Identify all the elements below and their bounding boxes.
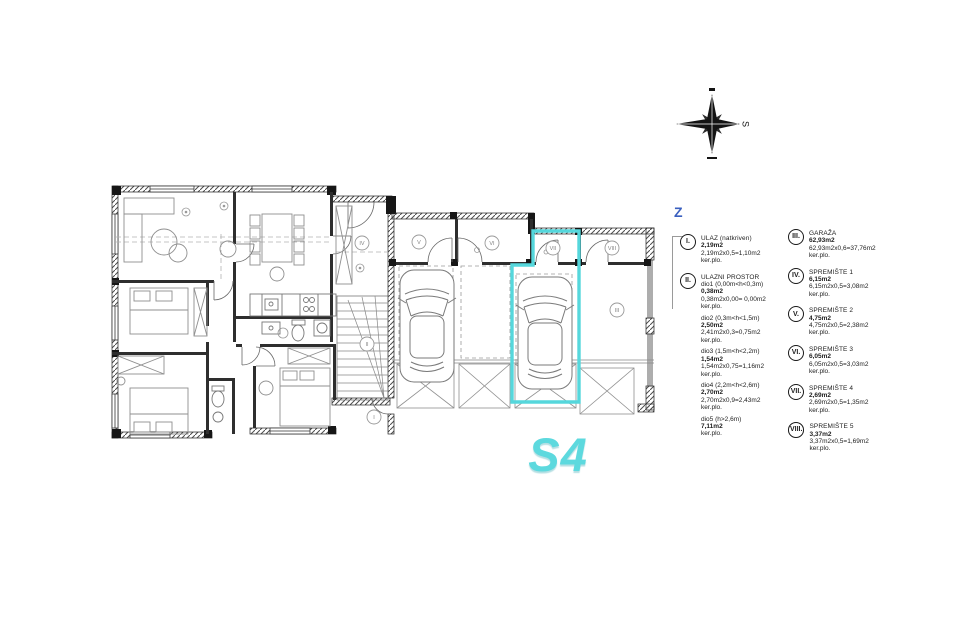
- room-label-viii: VIII: [605, 241, 619, 255]
- svg-text:VIII: VIII: [608, 246, 617, 252]
- bathroom-2: [212, 386, 224, 422]
- bedroom-b: [117, 356, 188, 434]
- legend-item-text: ULAZNI PROSTORdio1 (0,00m<h<0,3m)0,38m20…: [701, 273, 766, 438]
- compass-top-tick: [709, 88, 715, 91]
- room-label-vii: VII: [546, 241, 560, 255]
- garage-symbols: [475, 248, 549, 255]
- roman-numeral-badge: IV.: [788, 268, 804, 284]
- legend-item-text: SPREMIŠTE 16,15m26,15m2x0,5=3,08m2ker.pl…: [809, 268, 868, 299]
- svg-text:II: II: [365, 342, 369, 348]
- legend-item-iii: III.GARAŽA62,93m262,93m2x0,6=37,76m2ker.…: [788, 229, 893, 260]
- roman-numeral-badge: VII.: [788, 384, 804, 400]
- compass-bottom-tick: [707, 157, 717, 159]
- svg-text:VII: VII: [550, 246, 557, 252]
- legend-item-text: SPREMIŠTE 42,69m22,69m2x0,5=1,35m2ker.pl…: [809, 384, 868, 415]
- svg-text:V: V: [417, 240, 421, 246]
- section-marker-z: Z: [674, 204, 683, 220]
- legend-item-vii: VII.SPREMIŠTE 42,69m22,69m2x0,5=1,35m2ke…: [788, 384, 893, 415]
- svg-text:VI: VI: [489, 241, 495, 247]
- car-2: [516, 277, 574, 389]
- legend-item-iv: IV.SPREMIŠTE 16,15m26,15m2x0,5=3,08m2ker…: [788, 268, 893, 299]
- bedroom-c: [259, 348, 330, 426]
- bathroom-fixtures: [262, 320, 330, 341]
- legend-item-text: GARAŽA62,93m262,93m2x0,6=37,76m2ker.plo.: [809, 229, 876, 260]
- roman-numeral-badge: VI.: [788, 345, 804, 361]
- roman-numeral-badge: V.: [788, 306, 804, 322]
- bedroom-a: [130, 288, 207, 336]
- legend-column-2: III.GARAŽA62,93m262,93m2x0,6=37,76m2ker.…: [788, 229, 893, 461]
- room-label-v: V: [412, 235, 426, 249]
- legend-item-text: SPREMIŠTE 36,05m26,05m2x0,5=3,03m2ker.pl…: [809, 345, 868, 376]
- room-label-iii: III: [610, 303, 624, 317]
- legend-item-ii: II.ULAZNI PROSTORdio1 (0,00m<h<0,3m)0,38…: [680, 273, 785, 438]
- roman-numeral-badge: III.: [788, 229, 804, 245]
- compass-north-letter: S: [741, 121, 751, 127]
- roman-numeral-badge: I.: [680, 234, 696, 250]
- roman-numeral-badge: II.: [680, 273, 696, 289]
- room-label-iv: IV: [355, 236, 369, 250]
- svg-text:III: III: [615, 308, 620, 314]
- legend-column-1: I.ULAZ (natkriven)2,19m22,19m2x0,5=1,10m…: [680, 234, 785, 446]
- svg-text:IV: IV: [359, 241, 365, 247]
- dining-set: [250, 214, 304, 281]
- kitchen-counter: [250, 294, 336, 316]
- legend-item-v: V.SPREMIŠTE 24,75m24,75m2x0,5=2,38m2ker.…: [788, 306, 893, 337]
- legend-item-text: SPREMIŠTE 53,37m23,37m2x0,5=1,69m2ker.pl…: [809, 422, 868, 453]
- legend-item-i: I.ULAZ (natkriven)2,19m22,19m2x0,5=1,10m…: [680, 234, 785, 265]
- living-room-furniture: [124, 198, 236, 262]
- compass-rose: S: [676, 88, 751, 159]
- room-label-i: I: [367, 410, 381, 424]
- unit-s4-label: S4: [498, 427, 618, 482]
- room-label-vi: VI: [485, 236, 499, 250]
- legend-item-vi: VI.SPREMIŠTE 36,05m26,05m2x0,5=3,03m2ker…: [788, 345, 893, 376]
- roman-numeral-badge: VIII.: [788, 422, 804, 438]
- doors: [214, 202, 388, 414]
- entry-room: [336, 206, 352, 284]
- room-label-ii: II: [360, 337, 374, 351]
- car-1: [398, 270, 456, 382]
- house-block: [112, 186, 396, 438]
- legend-item-text: ULAZ (natkriven)2,19m22,19m2x0,5=1,10m2k…: [701, 234, 760, 265]
- legend-item-text: SPREMIŠTE 24,75m24,75m2x0,5=2,38m2ker.pl…: [809, 306, 868, 337]
- legend-item-viii: VIII.SPREMIŠTE 53,37m23,37m2x0,5=1,69m2k…: [788, 422, 893, 453]
